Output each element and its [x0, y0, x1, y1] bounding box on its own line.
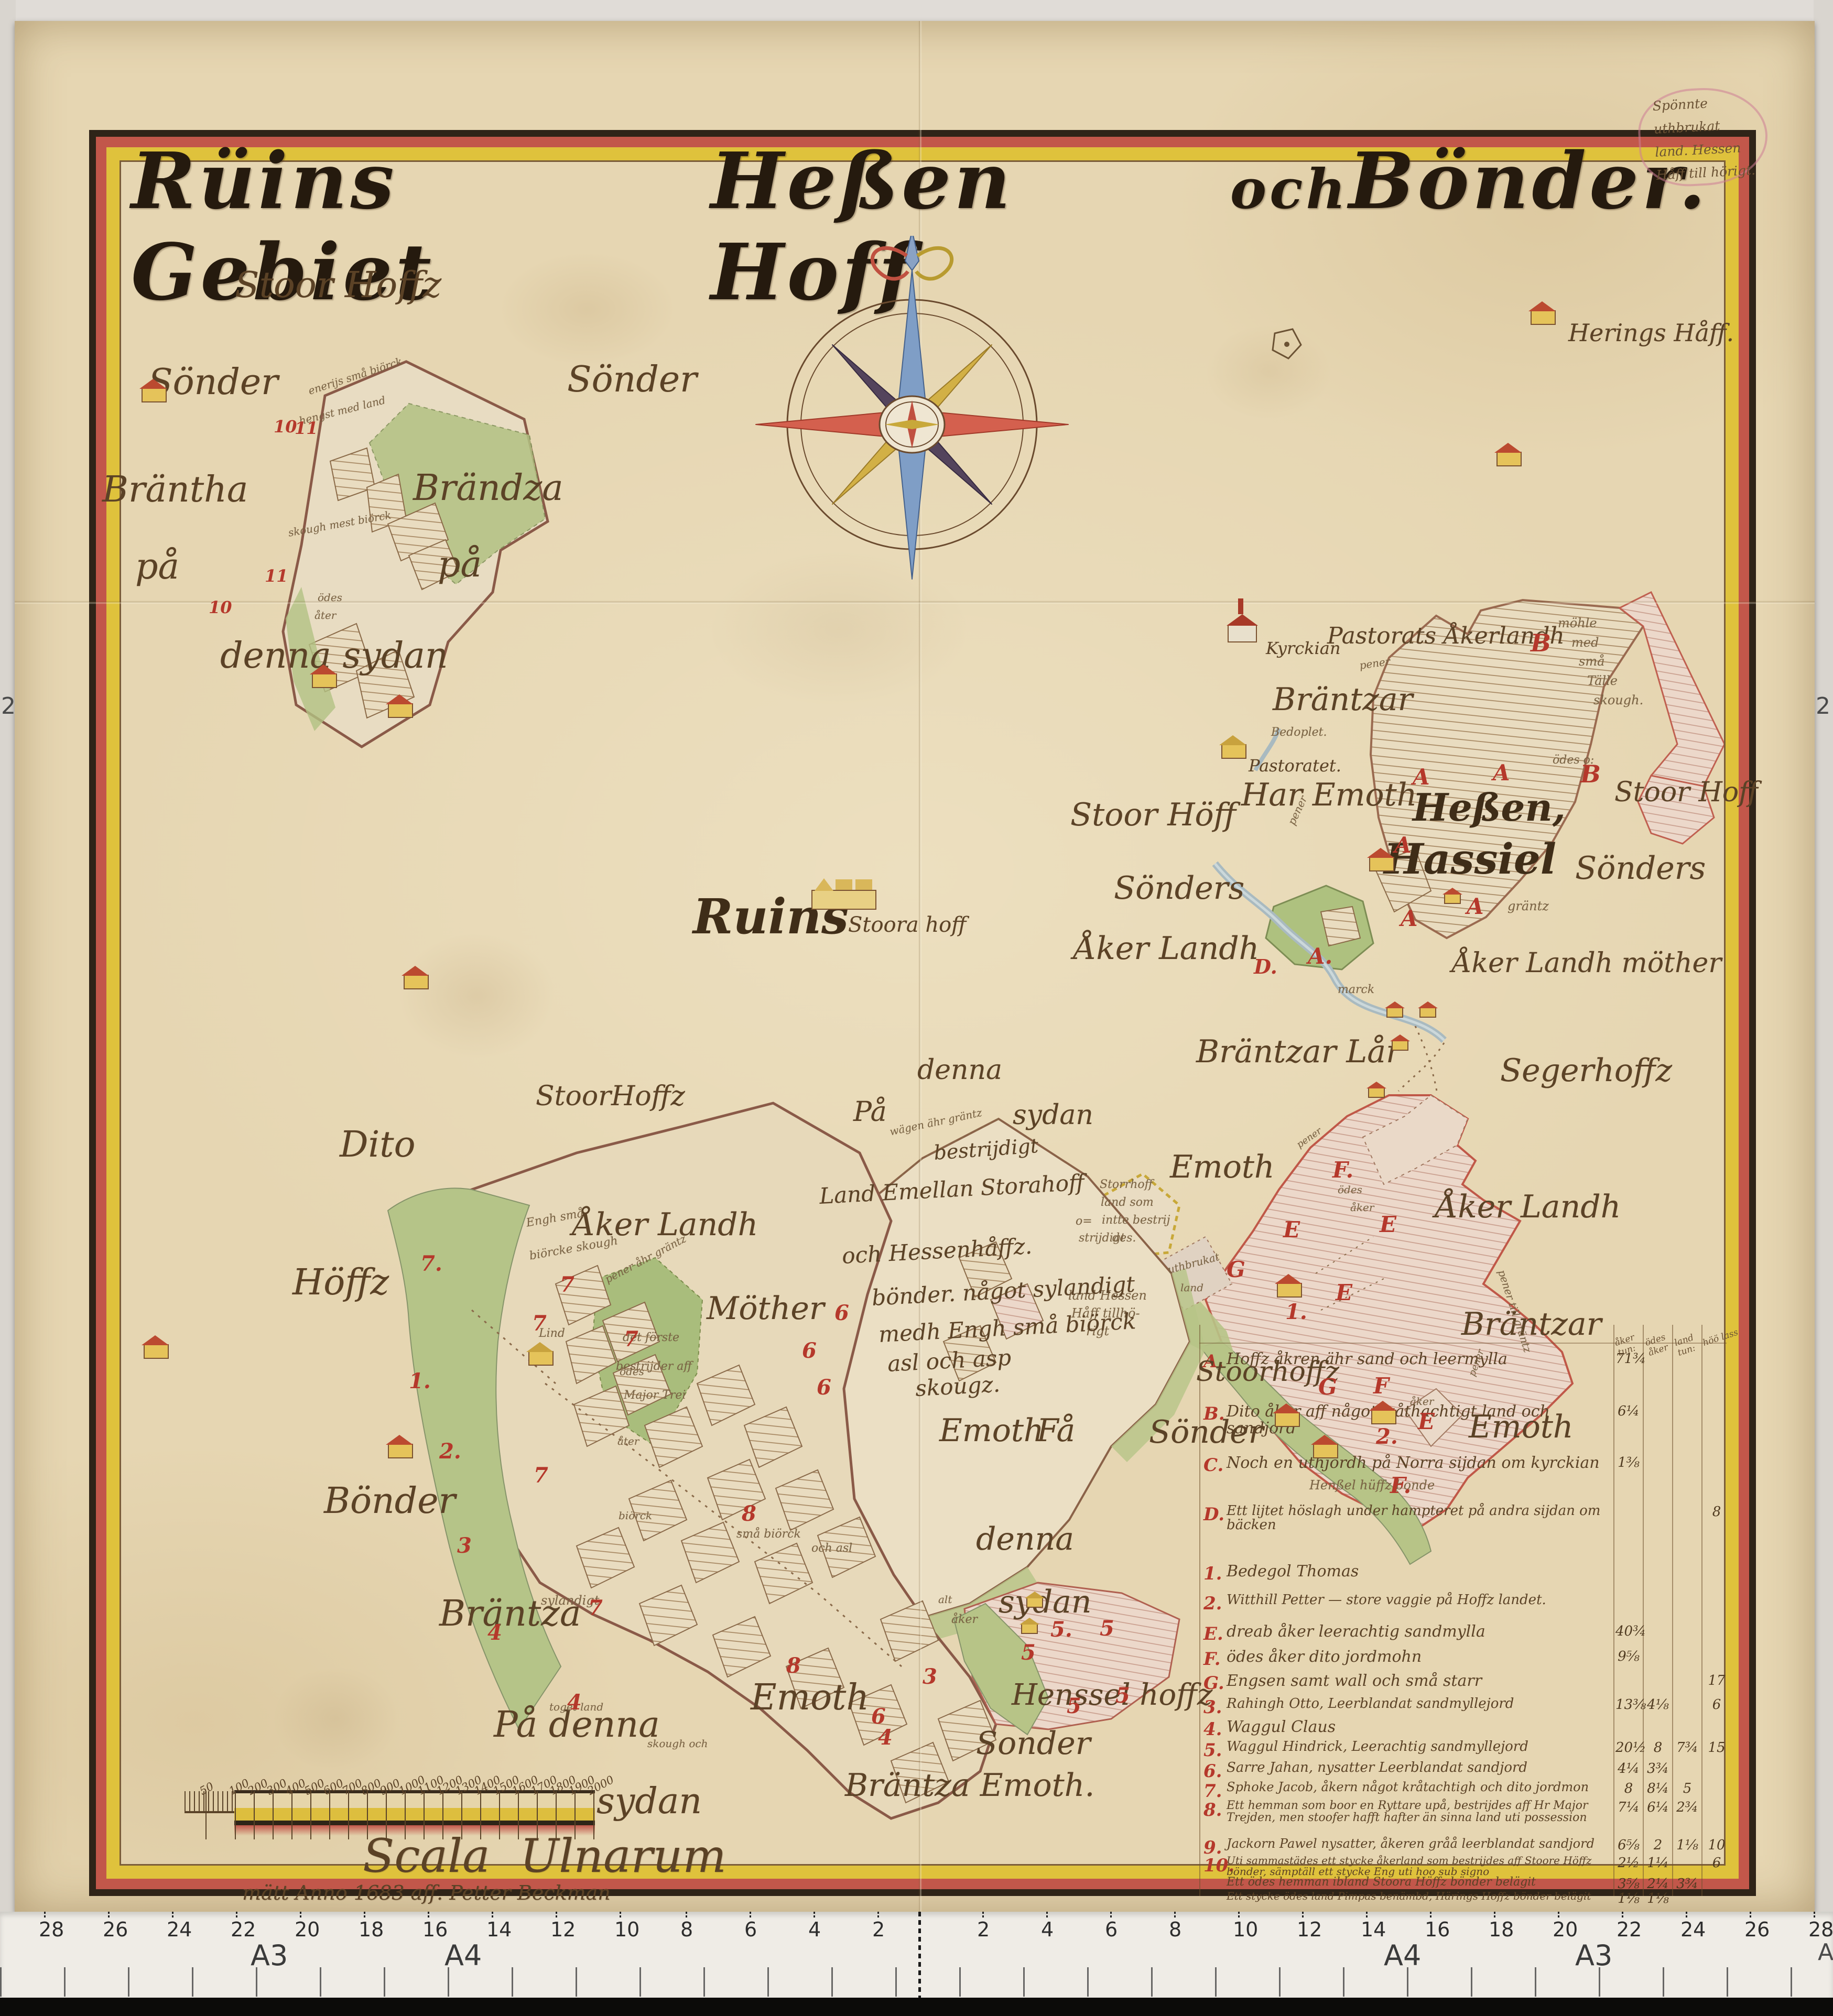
- row-value: 1⅛: [1645, 1891, 1671, 1906]
- scan-edge-number: A: [1818, 1939, 1833, 1966]
- row-value: 7¾: [1674, 1740, 1700, 1756]
- row-description: Hoffz åkren ähr sand och leermylla: [1227, 1351, 1612, 1368]
- ruler-number: 20: [295, 1918, 320, 1941]
- scan-edge-right: [1814, 0, 1833, 2016]
- row-value: 71¾: [1615, 1351, 1642, 1367]
- row-marker: D.: [1203, 1504, 1224, 1525]
- title-part: och: [1230, 157, 1349, 221]
- row-value: 8: [1615, 1781, 1642, 1796]
- row-marker: 8.: [1203, 1800, 1222, 1821]
- table-line: [1701, 1325, 1702, 1896]
- ruler-number: 24: [1680, 1918, 1706, 1941]
- row-marker: 6.: [1203, 1761, 1222, 1782]
- land-register-table: åker tun:ödes åkerland tun:höö lass A.Ho…: [1199, 1325, 1730, 1896]
- row-description: Witthill Petter — store vaggie på Hoffz …: [1227, 1593, 1612, 1607]
- ruler-number: 10: [1233, 1918, 1258, 1941]
- scale-tick: [235, 1791, 236, 1839]
- row-description: Ett stycke ödes land Pimpas benämbd, Här…: [1227, 1891, 1612, 1902]
- ruler-sheet-size-label: A4: [1384, 1939, 1421, 1972]
- row-value: 6¼: [1615, 1403, 1642, 1419]
- table-line: [1199, 1325, 1200, 1896]
- row-value: 6: [1704, 1697, 1730, 1713]
- row-value: 1⅛: [1615, 1891, 1642, 1906]
- row-value: 4⅛: [1645, 1697, 1671, 1713]
- scan-edge-left: [0, 0, 16, 2016]
- row-description: Rahingh Otto, Leerblandat sandmyllejord: [1227, 1697, 1612, 1711]
- ruler-number: 28: [1808, 1918, 1833, 1941]
- row-description: Waggul Claus: [1227, 1719, 1612, 1736]
- ruler-number: 10: [614, 1918, 639, 1941]
- ruler-sheet-size-label: A3: [1575, 1939, 1612, 1972]
- row-marker: B.: [1203, 1403, 1225, 1424]
- row-description: Jackorn Pawel nysatter, åkeren gråå leer…: [1227, 1837, 1612, 1850]
- scale-tick: [291, 1791, 292, 1839]
- row-value: 2½: [1615, 1855, 1642, 1871]
- ruler-sheet-size-label: A4: [444, 1939, 482, 1972]
- scan-edge-top: [0, 0, 1833, 22]
- row-value: 15: [1704, 1740, 1730, 1756]
- row-value: 2¾: [1674, 1800, 1700, 1815]
- scale-tick: [499, 1791, 500, 1839]
- row-value: 10: [1704, 1837, 1730, 1853]
- row-marker: A.: [1203, 1351, 1223, 1372]
- row-marker: 2.: [1203, 1593, 1222, 1614]
- table-line: [1643, 1325, 1644, 1896]
- scale-tick: [254, 1791, 255, 1839]
- scale-tick: [329, 1791, 330, 1839]
- photographic-ruler: 2826242220181614121086422468101214161820…: [0, 1912, 1833, 1998]
- ruler-number: 16: [1425, 1918, 1450, 1941]
- row-marker: C.: [1203, 1455, 1223, 1476]
- row-description: Sarre Jahan, nysatter Leerblandat sandjo…: [1227, 1761, 1612, 1775]
- row-value: 1⅛: [1674, 1837, 1700, 1853]
- title-part: Heßen Hoff: [711, 135, 1230, 318]
- ruler-number: 24: [167, 1918, 192, 1941]
- map-title: Rüins Gebiet Heßen Hoff och Bönder.: [131, 135, 1709, 318]
- row-description: Ett lijtet höslagh under hampteret på an…: [1227, 1504, 1612, 1533]
- row-description: Uti sammastädes ett stycke åkerland som …: [1227, 1855, 1612, 1877]
- row-value: 13⅜: [1615, 1697, 1642, 1713]
- row-value: 1⅜: [1615, 1455, 1642, 1470]
- ruler-number: 8: [1169, 1918, 1181, 1941]
- ruler-number: 26: [1744, 1918, 1770, 1941]
- scale-bar-band: [234, 1821, 595, 1825]
- row-value: 8: [1645, 1740, 1671, 1756]
- ruler-number: 22: [231, 1918, 256, 1941]
- row-marker: F.: [1203, 1649, 1221, 1670]
- ruler-number: 14: [1361, 1918, 1386, 1941]
- row-value: 3¾: [1645, 1761, 1671, 1777]
- table-line: [1672, 1325, 1673, 1896]
- scale-bar-band: [234, 1808, 595, 1821]
- ruler-number: 26: [103, 1918, 128, 1941]
- row-marker: 5.: [1203, 1740, 1222, 1761]
- row-value: 6¼: [1645, 1800, 1671, 1815]
- row-marker: 1.: [1203, 1563, 1222, 1584]
- row-value: 1¼: [1645, 1855, 1671, 1871]
- row-value: 20½: [1615, 1740, 1642, 1756]
- row-description: Sphoke Jacob, åkern något kråtachtigh oc…: [1227, 1781, 1612, 1794]
- scan-edge-number: 2: [1, 693, 16, 720]
- scale-bar-comb: [185, 1791, 234, 1813]
- row-description: Bedegol Thomas: [1227, 1563, 1612, 1580]
- row-value: 6: [1704, 1855, 1730, 1871]
- row-marker: 4.: [1203, 1719, 1222, 1740]
- row-marker: 3.: [1203, 1697, 1222, 1718]
- scale-tick: [518, 1791, 519, 1839]
- ruler-sheet-size-label: A3: [251, 1939, 288, 1972]
- row-value: 7¼: [1615, 1800, 1642, 1815]
- scan-black-bar: [0, 1998, 1833, 2016]
- scale-tick: [348, 1791, 349, 1839]
- row-value: 17: [1704, 1673, 1730, 1688]
- row-description: dreab åker leerachtig sandmylla: [1227, 1623, 1612, 1640]
- ruler-number: 12: [550, 1918, 576, 1941]
- ruler-number: 2: [977, 1918, 990, 1941]
- row-value: 2¼: [1645, 1876, 1671, 1892]
- scale-bar: 5010020030040050060070080090010001100120…: [185, 1775, 614, 1901]
- row-description: Noch en uthjordh på Norra sijdan om kyrc…: [1227, 1455, 1612, 1472]
- ruler-number: 8: [680, 1918, 693, 1941]
- ruler-number: 28: [39, 1918, 64, 1941]
- row-value: 40¾: [1615, 1623, 1642, 1639]
- ruler-number: 20: [1553, 1918, 1578, 1941]
- ruler-number: 6: [744, 1918, 757, 1941]
- row-value: 2: [1645, 1837, 1671, 1853]
- row-marker: G.: [1203, 1673, 1224, 1694]
- ruler-number: 6: [1105, 1918, 1118, 1941]
- scale-tick: [205, 1791, 207, 1839]
- row-description: Engsen samt wall och små starr: [1227, 1673, 1612, 1690]
- scale-bar-caption: mätt Anno 1683 aff. Petter Beckman: [242, 1881, 611, 1904]
- row-value: 8: [1704, 1504, 1730, 1520]
- scale-tick: [273, 1791, 274, 1839]
- ruler-number: 4: [808, 1918, 821, 1941]
- row-description: Dito åker aff något wåthachtigt land och…: [1227, 1403, 1612, 1436]
- archive-stamp-note: Spönnte uthbrukat land. Hessen Håff till…: [1636, 85, 1770, 189]
- title-part: Rüins Gebiet: [131, 135, 711, 318]
- ruler-number: 16: [422, 1918, 448, 1941]
- row-value: 5: [1674, 1781, 1700, 1796]
- row-value: 3⅝: [1615, 1876, 1642, 1892]
- scale-bar-word: Ulnarum: [520, 1829, 726, 1883]
- row-value: 6⅝: [1615, 1837, 1642, 1853]
- ruler-number: 2: [872, 1918, 885, 1941]
- scale-bar-word: Scala: [363, 1829, 490, 1883]
- table-line: [1613, 1325, 1614, 1896]
- row-description: Waggul Hindrick, Leerachtig sandmyllejor…: [1227, 1740, 1612, 1754]
- ruler-number: 18: [1489, 1918, 1514, 1941]
- row-value: 9⅝: [1615, 1649, 1642, 1664]
- scale-tick: [310, 1791, 311, 1839]
- ruler-number: 12: [1297, 1918, 1322, 1941]
- row-description: Ett hemman som boor en Ryttare upå, best…: [1227, 1800, 1612, 1824]
- row-description: ödes åker dito jordmohn: [1227, 1649, 1612, 1665]
- row-value: 4¼: [1615, 1761, 1642, 1777]
- ruler-number: 4: [1041, 1918, 1054, 1941]
- row-marker: 7.: [1203, 1781, 1222, 1802]
- row-value: 3¾: [1674, 1876, 1700, 1892]
- ruler-number: 22: [1617, 1918, 1642, 1941]
- row-description: Ett ödes hemman ibland Stoora Höffz bönd…: [1227, 1876, 1612, 1888]
- scan-edge-number: 2: [1816, 693, 1830, 720]
- row-value: 8¼: [1645, 1781, 1671, 1796]
- ruler-number: 14: [486, 1918, 512, 1941]
- ruler-number: 18: [359, 1918, 384, 1941]
- scanned-historical-map: { "title":{"p1":"Rüins Gebiet","p2":"Heß…: [0, 0, 1833, 2016]
- row-marker: E.: [1203, 1623, 1223, 1644]
